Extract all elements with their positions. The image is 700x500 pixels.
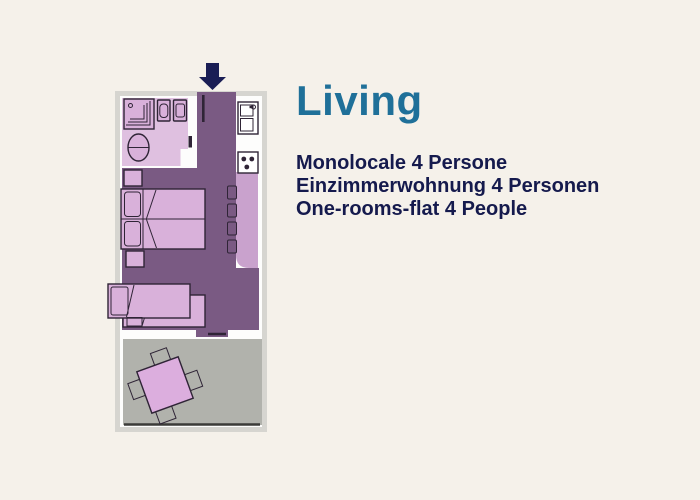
stove-icon — [238, 152, 258, 173]
toilet-icon — [128, 134, 149, 161]
kitchen-sink-icon — [238, 102, 258, 134]
page: Living Monolocale 4 Persone Einzimmerwoh… — [0, 0, 700, 500]
description-line-german: Einzimmerwohnung 4 Personen — [296, 175, 599, 198]
single-bed-icon — [108, 284, 205, 327]
floorplan — [95, 55, 280, 440]
nightstand-bottom — [126, 251, 144, 267]
entrance-arrow-icon — [199, 63, 226, 90]
bathroom-door-jamb — [189, 136, 193, 148]
description: Monolocale 4 Persone Einzimmerwohnung 4 … — [296, 152, 599, 221]
nightstand-top — [124, 170, 142, 186]
description-line-italian: Monolocale 4 Persone — [296, 152, 599, 175]
kitchen-counter — [236, 172, 258, 268]
description-line-english: One-rooms-flat 4 People — [296, 198, 599, 221]
cistern-icon — [174, 100, 187, 121]
page-title: Living — [296, 80, 599, 122]
double-bed-icon — [121, 189, 205, 249]
text-block: Living Monolocale 4 Persone Einzimmerwoh… — [296, 80, 599, 221]
bathroom-sink-icon — [158, 100, 171, 121]
shower-icon — [124, 99, 154, 129]
entrance-door-leaf — [202, 95, 205, 122]
